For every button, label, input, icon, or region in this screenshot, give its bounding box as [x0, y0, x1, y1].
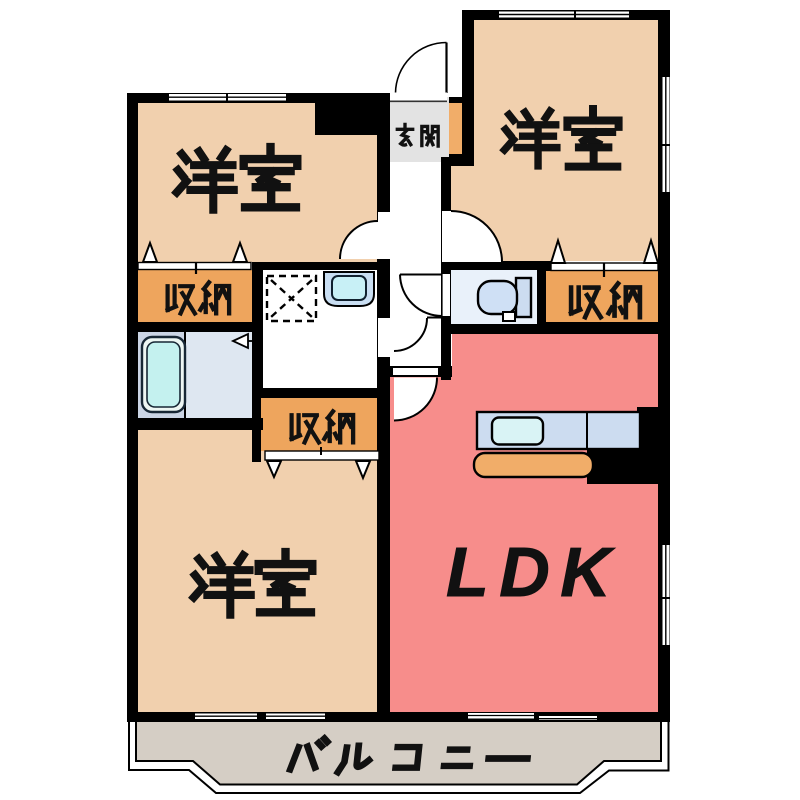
svg-text:LDK: LDK	[446, 533, 621, 611]
